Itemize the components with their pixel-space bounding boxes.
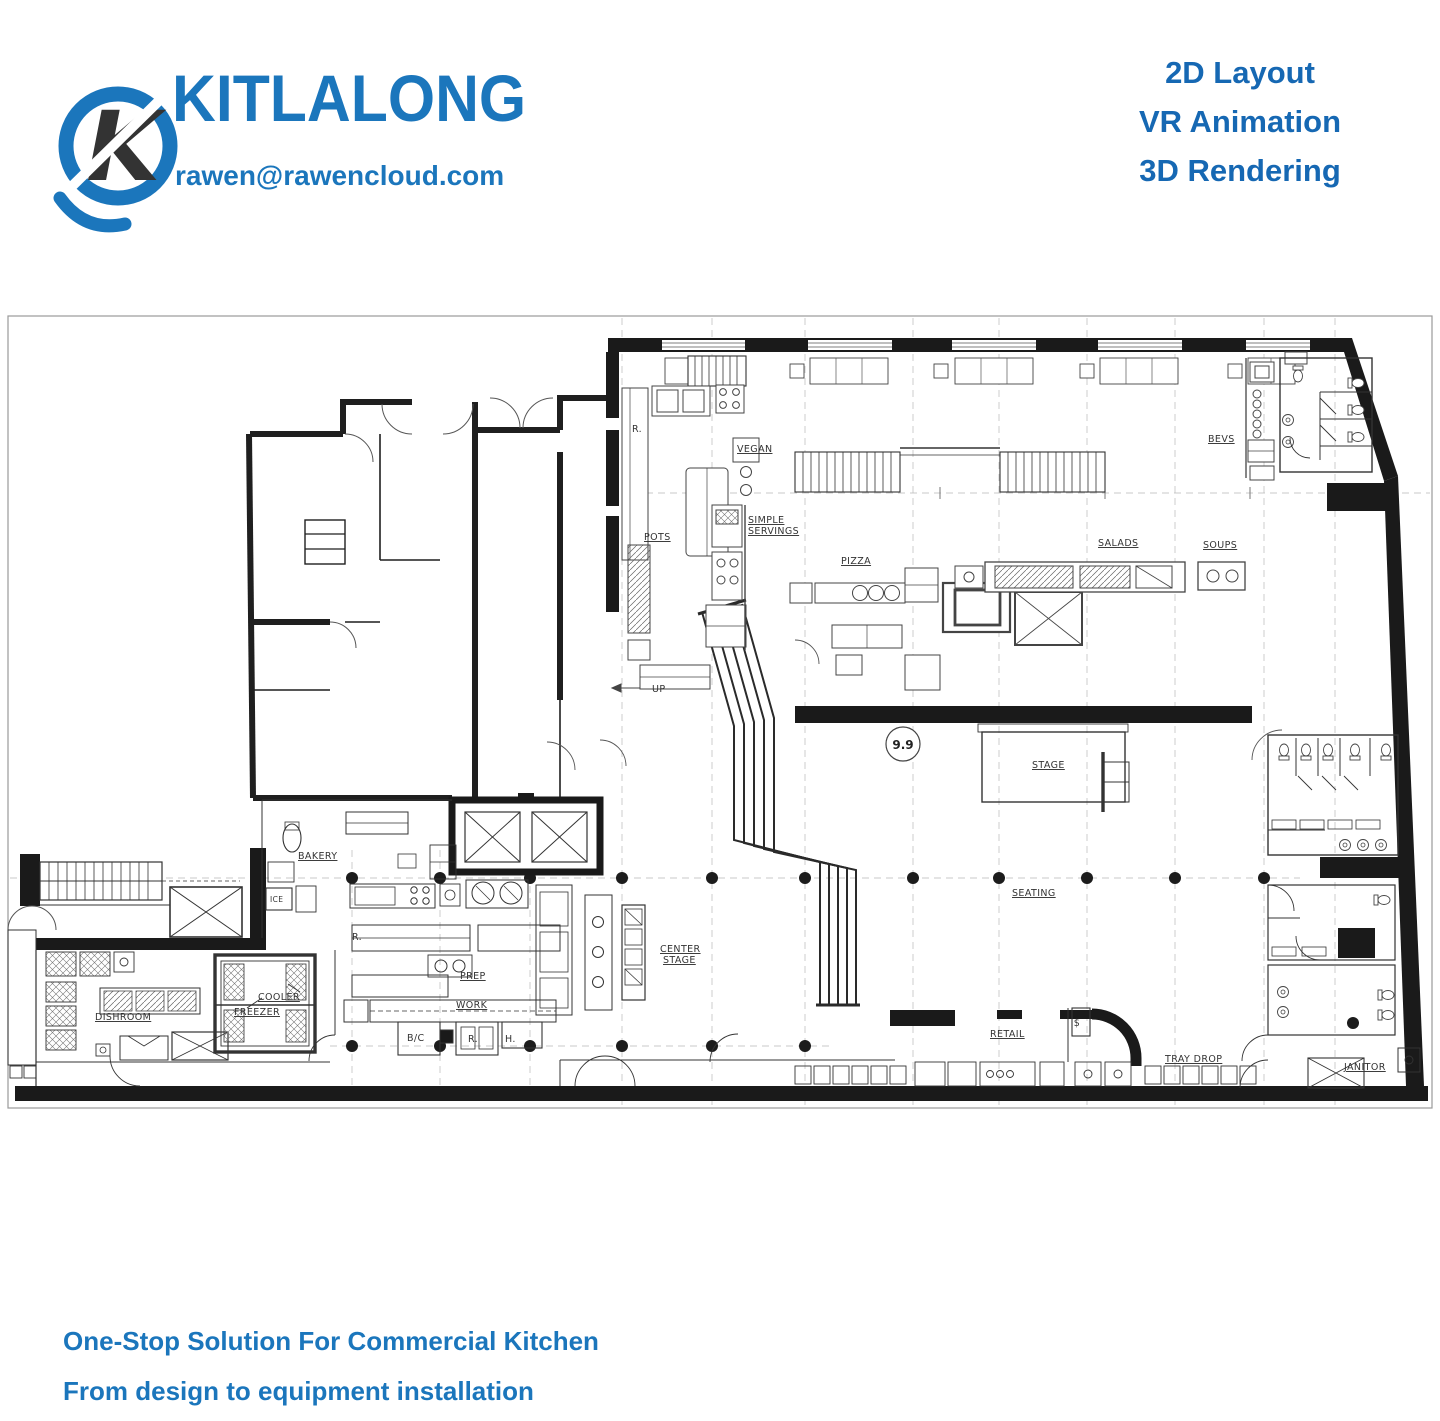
label-vegan: VEGAN <box>737 444 772 455</box>
label-up: UP <box>652 684 665 695</box>
page: K KITLALONG rawen@rawencloud.com 2D Layo… <box>0 0 1440 1421</box>
label-prep: PREP <box>460 971 486 982</box>
label-simple-1: SIMPLE <box>748 515 784 526</box>
label-janitor: JANITOR <box>1343 1062 1386 1073</box>
label-seating: SEATING <box>1012 888 1056 899</box>
label-center-2: STAGE <box>663 955 696 966</box>
label-r-2: R. <box>468 1034 478 1045</box>
label-cash: $ <box>1074 1018 1080 1029</box>
service-elevator <box>170 887 242 937</box>
label-r-3: R. <box>632 424 642 435</box>
label-bc: B/C <box>407 1033 425 1044</box>
footer-line-1: One-Stop Solution For Commercial Kitchen <box>63 1316 599 1366</box>
label-salads: SALADS <box>1098 538 1138 549</box>
label-work: WORK <box>456 1000 488 1011</box>
elevator-bank <box>452 793 600 872</box>
label-freezer: FREEZER <box>234 1007 280 1018</box>
label-retail: RETAIL <box>990 1029 1025 1040</box>
grid-bubble: 9.9 <box>886 727 920 761</box>
label-soups: SOUPS <box>1203 540 1237 551</box>
label-h: H. <box>505 1034 516 1045</box>
label-pizza: PIZZA <box>841 556 871 567</box>
label-ice: ICE <box>270 895 283 904</box>
label-r-1: R. <box>352 932 362 943</box>
salads-counter <box>955 562 1245 592</box>
label-bakery: BAKERY <box>298 851 337 862</box>
svg-text:9.9: 9.9 <box>892 738 913 752</box>
label-simple-2: SERVINGS <box>748 526 799 537</box>
label-pots: POTS <box>644 532 671 543</box>
floorplan-svg: 9.9 <box>0 0 1440 1421</box>
footer-tagline: One-Stop Solution For Commercial Kitchen… <box>63 1316 599 1416</box>
label-tray-drop: TRAY DROP <box>1164 1054 1222 1065</box>
label-cooler: COOLER <box>258 992 300 1003</box>
label-center-1: CENTER <box>660 944 701 955</box>
label-stage: STAGE <box>1032 760 1065 771</box>
label-bevs: BEVS <box>1208 434 1235 445</box>
footer-line-2: From design to equipment installation <box>63 1366 599 1416</box>
label-dishroom: DISHROOM <box>95 1012 151 1023</box>
